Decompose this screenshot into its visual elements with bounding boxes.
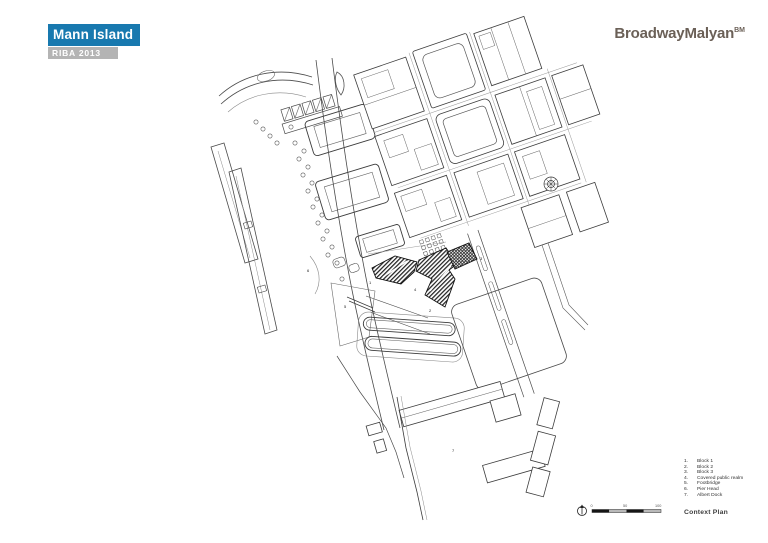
footbridge: [347, 297, 375, 312]
drawing-title: Context Plan: [684, 509, 728, 516]
street-line: [368, 242, 446, 254]
legend-item: 7.Albert Dock: [684, 493, 743, 499]
scale-bar: 0 50 100: [591, 504, 662, 513]
company-logo-sup: BM: [734, 27, 745, 34]
svg-text:7: 7: [452, 448, 455, 453]
pier-head-landing-stage: [211, 143, 277, 334]
svg-text:100: 100: [655, 504, 661, 508]
context-plan-map: 1 2 3 4 5 6 7 0 50 100: [0, 0, 768, 543]
svg-text:6: 6: [307, 268, 310, 273]
project-title: Mann Island: [48, 24, 140, 46]
canning-docks: [356, 311, 465, 362]
pier-head-plaza: [310, 256, 375, 346]
albert-dock: [364, 376, 568, 520]
presentation-sheet: 1 2 3 4 5 6 7 0 50 100: [0, 0, 768, 543]
svg-text:2: 2: [429, 308, 432, 313]
svg-text:50: 50: [623, 504, 627, 508]
company-logo-text: BroadwayMalyan: [614, 25, 734, 42]
award-badge: RIBA 2013: [48, 47, 118, 60]
block-1-building: [372, 256, 417, 284]
dual-carriageway-road: [468, 230, 535, 397]
svg-text:5: 5: [344, 304, 347, 309]
svg-text:3: 3: [480, 256, 483, 261]
title-block: Mann Island RIBA 2013: [48, 24, 140, 59]
north-arrow-icon: [578, 505, 587, 516]
canning-basin: [449, 276, 568, 392]
monument-circle: [544, 177, 558, 191]
legend: 1.Block 1 2.Block 2 3.Block 3 4.Covered …: [684, 459, 743, 498]
svg-text:0: 0: [591, 504, 593, 508]
east-roads: [542, 243, 588, 330]
svg-text:4: 4: [414, 287, 417, 292]
map-callouts: 1 2 3 4 5 6 7: [307, 256, 483, 453]
company-logo: BroadwayMalyanBM: [614, 25, 745, 42]
city-street-grid: [353, 1, 679, 416]
svg-text:1: 1: [369, 280, 372, 285]
